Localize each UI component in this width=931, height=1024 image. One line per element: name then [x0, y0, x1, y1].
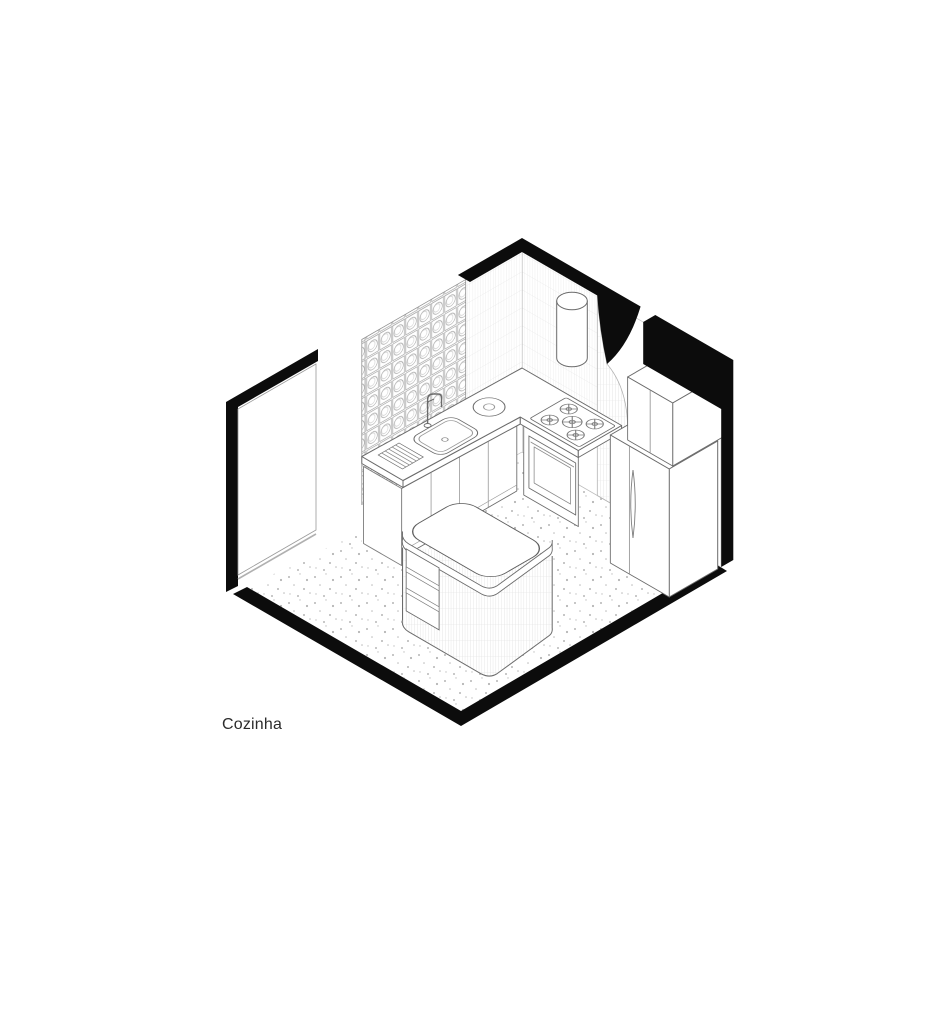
left-wall: [226, 349, 318, 592]
kitchen-axonometric-drawing: Cozinha: [0, 0, 931, 1024]
range-hood: [557, 292, 588, 367]
drawing-sheet: Cozinha: [0, 0, 931, 1024]
room-label: Cozinha: [222, 716, 282, 733]
